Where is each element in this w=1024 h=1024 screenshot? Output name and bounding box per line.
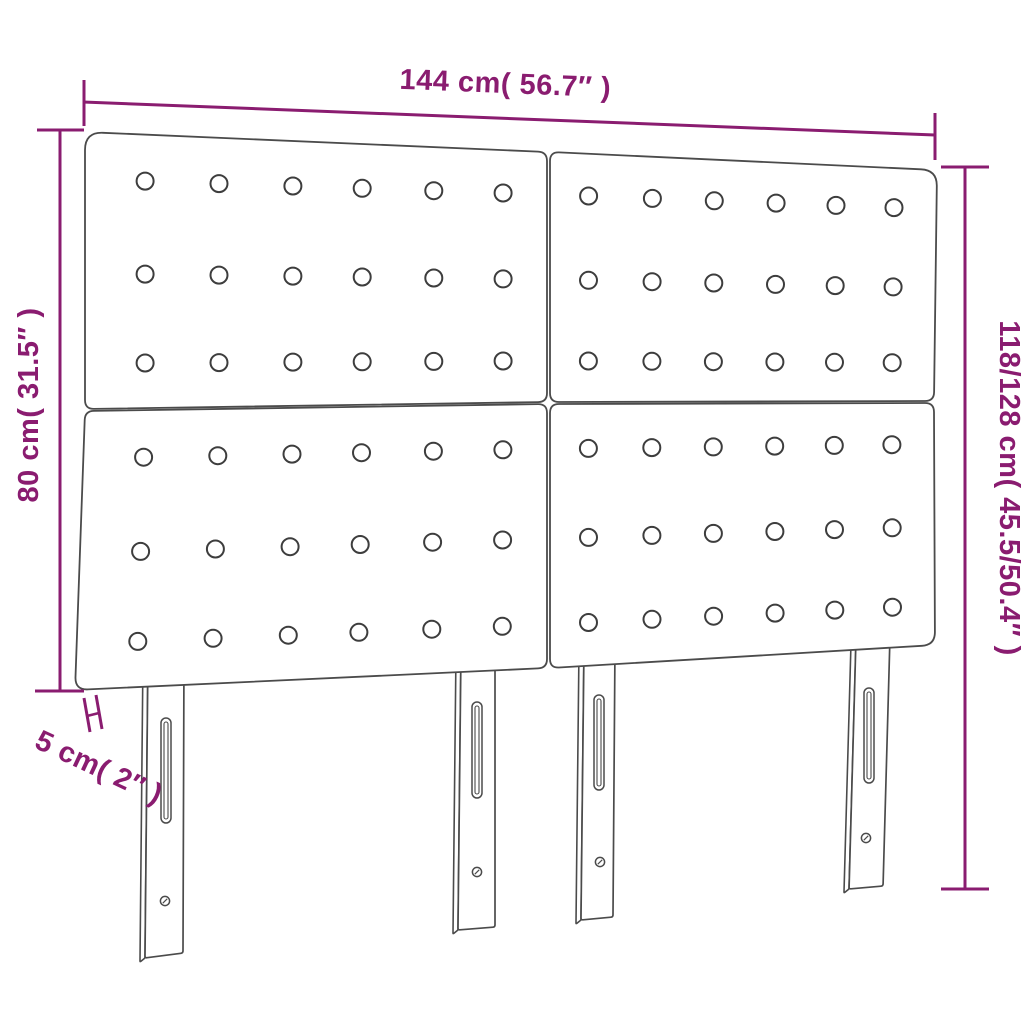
upholstery-button bbox=[580, 188, 597, 205]
upholstery-button bbox=[425, 270, 442, 287]
upholstery-button bbox=[354, 269, 371, 286]
upholstery-button bbox=[494, 532, 511, 549]
upholstery-button bbox=[205, 630, 222, 647]
upholstery-button bbox=[211, 175, 228, 192]
upholstery-button bbox=[580, 353, 597, 370]
upholstery-button bbox=[705, 438, 722, 455]
upholstery-button bbox=[495, 185, 512, 202]
upholstery-button bbox=[766, 354, 783, 371]
headboard-panels-group bbox=[75, 133, 936, 690]
upholstery-button bbox=[884, 354, 901, 371]
upholstery-button bbox=[643, 439, 660, 456]
upholstery-button bbox=[643, 353, 660, 370]
upholstery-button bbox=[580, 614, 597, 631]
upholstery-button bbox=[207, 541, 224, 558]
upholstery-button bbox=[705, 525, 722, 542]
upholstery-button bbox=[767, 605, 784, 622]
upholstery-button bbox=[137, 173, 154, 190]
upholstery-button bbox=[284, 268, 301, 285]
upholstery-button bbox=[135, 449, 152, 466]
upholstery-button bbox=[425, 182, 442, 199]
upholstery-button bbox=[705, 608, 722, 625]
upholstery-button bbox=[425, 353, 442, 370]
upholstery-button bbox=[644, 273, 661, 290]
upholstery-button bbox=[827, 277, 844, 294]
upholstery-button bbox=[137, 266, 154, 283]
upholstery-button bbox=[352, 536, 369, 553]
headboard-panel bbox=[550, 403, 935, 668]
upholstery-button bbox=[129, 633, 146, 650]
upholstery-button bbox=[883, 436, 900, 453]
dimension-diagram: 144 cm( 56.7″ ) 80 cm( 31.5″ ) 118/128 c… bbox=[0, 0, 1024, 1024]
headboard-panel bbox=[550, 152, 937, 402]
upholstery-button bbox=[768, 195, 785, 212]
upholstery-button bbox=[884, 599, 901, 616]
upholstery-button bbox=[211, 267, 228, 284]
width-dimension-label: 144 cm( 56.7″ ) bbox=[399, 64, 612, 104]
upholstery-button bbox=[495, 270, 512, 287]
upholstery-button bbox=[885, 278, 902, 295]
upholstery-button bbox=[643, 527, 660, 544]
upholstery-button bbox=[766, 523, 783, 540]
upholstery-button bbox=[425, 443, 442, 460]
headboard-diagram-canvas: 144 cm( 56.7″ ) 80 cm( 31.5″ ) 118/128 c… bbox=[0, 0, 1024, 1024]
upholstery-button bbox=[209, 447, 226, 464]
upholstery-button bbox=[826, 354, 843, 371]
upholstery-button bbox=[284, 446, 301, 463]
upholstery-button bbox=[280, 627, 297, 644]
upholstery-button bbox=[828, 197, 845, 214]
upholstery-button bbox=[826, 602, 843, 619]
upholstery-button bbox=[132, 543, 149, 560]
upholstery-button bbox=[644, 611, 661, 628]
upholstery-button bbox=[580, 272, 597, 289]
upholstery-button bbox=[644, 190, 661, 207]
upholstery-button bbox=[353, 444, 370, 461]
thickness-mark-crossbar bbox=[87, 713, 99, 716]
leg-adjustment-slot bbox=[864, 688, 874, 783]
upholstery-button bbox=[494, 441, 511, 458]
upholstery-button bbox=[705, 275, 722, 292]
upholstery-button bbox=[826, 521, 843, 538]
width-dimension-line bbox=[83, 102, 935, 135]
upholstery-button bbox=[282, 538, 299, 555]
upholstery-button bbox=[706, 192, 723, 209]
thickness-mark-right bbox=[96, 695, 102, 729]
upholstery-button bbox=[211, 354, 228, 371]
upholstery-button bbox=[580, 529, 597, 546]
upholstery-button bbox=[423, 621, 440, 638]
upholstery-button bbox=[350, 624, 367, 641]
upholstery-button bbox=[494, 618, 511, 635]
total-height-dimension-label: 118/128 cm( 45.5/50.4″ ) bbox=[993, 320, 1024, 655]
upholstery-button bbox=[884, 519, 901, 536]
upholstery-button bbox=[580, 440, 597, 457]
upholstery-button bbox=[137, 355, 154, 372]
upholstery-button bbox=[495, 353, 512, 370]
headboard-panel bbox=[85, 133, 547, 409]
upholstery-button bbox=[424, 534, 441, 551]
upholstery-button bbox=[354, 353, 371, 370]
leg-adjustment-slot bbox=[594, 695, 604, 790]
upholstery-button bbox=[284, 354, 301, 371]
upholstery-button bbox=[767, 276, 784, 293]
upholstery-button bbox=[705, 353, 722, 370]
panel-height-dimension-label: 80 cm( 31.5″ ) bbox=[13, 308, 45, 503]
leg-adjustment-slot bbox=[161, 718, 171, 823]
upholstery-button bbox=[766, 438, 783, 455]
upholstery-button bbox=[886, 199, 903, 216]
upholstery-button bbox=[354, 180, 371, 197]
upholstery-button bbox=[284, 178, 301, 195]
leg-adjustment-slot bbox=[472, 702, 482, 798]
upholstery-button bbox=[826, 437, 843, 454]
legs-group bbox=[140, 638, 890, 962]
